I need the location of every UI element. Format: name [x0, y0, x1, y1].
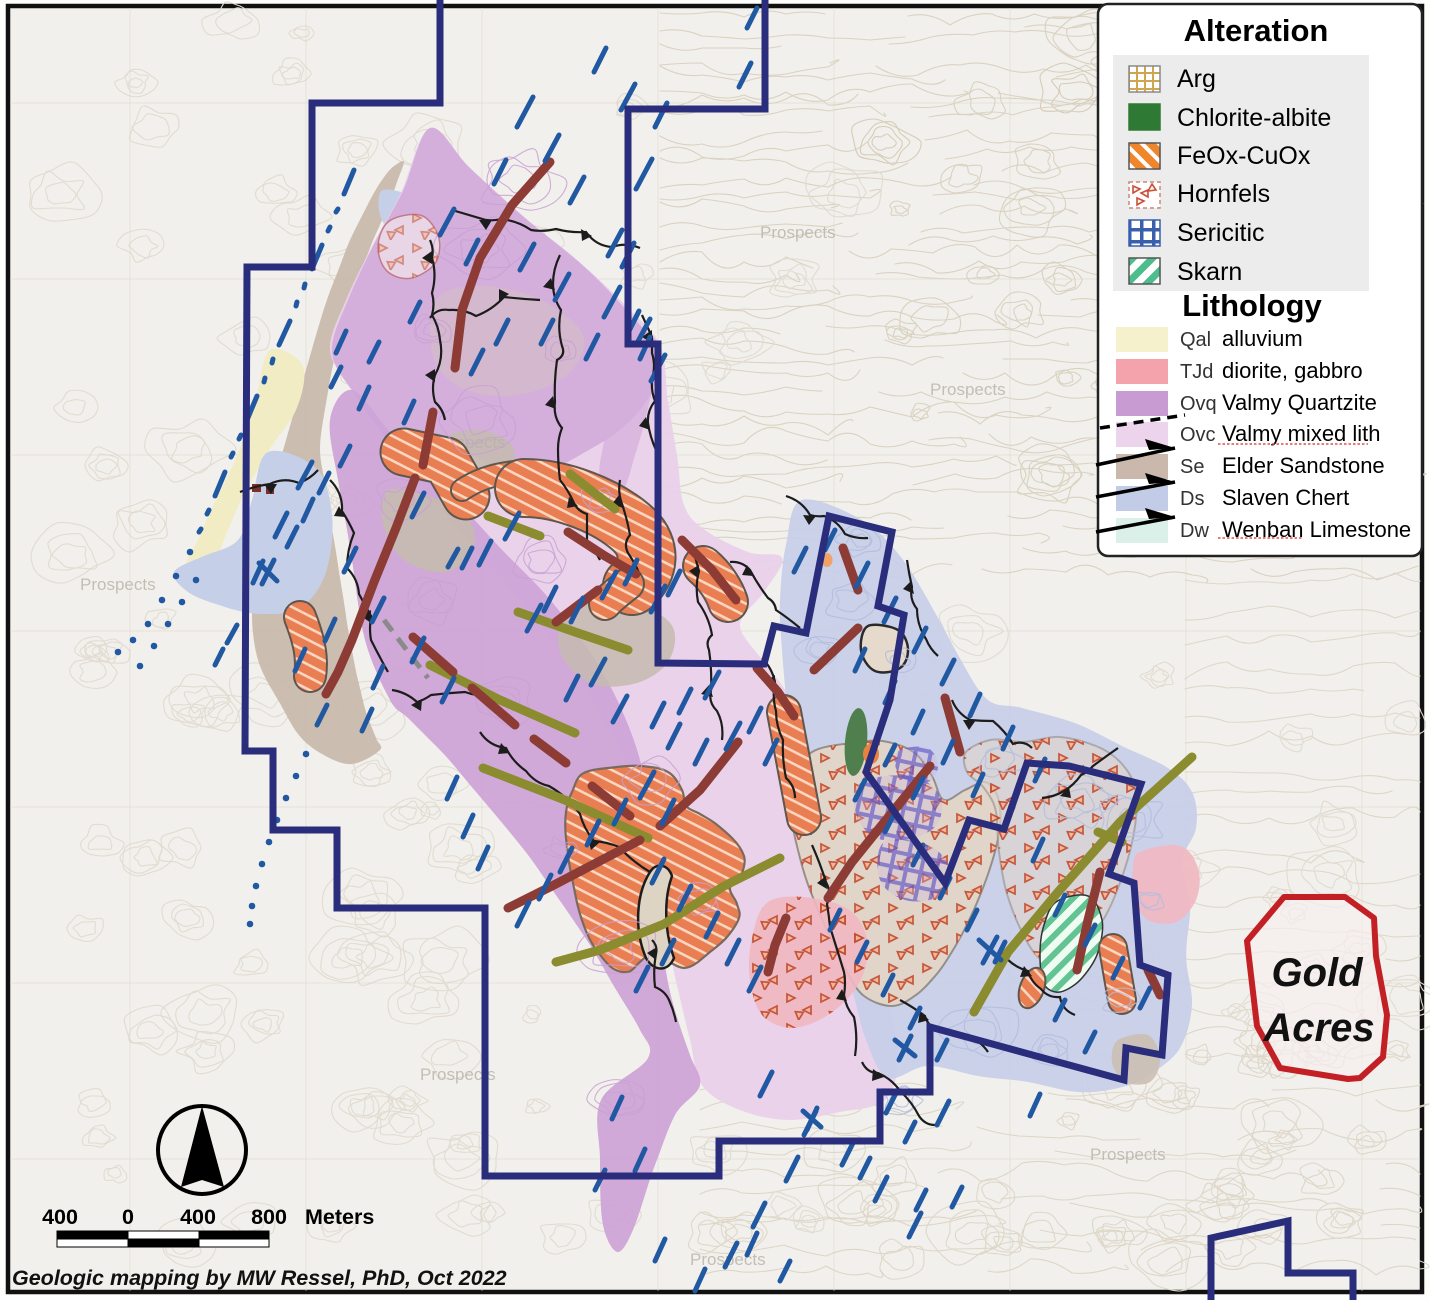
svg-text:Acres: Acres — [1262, 1006, 1374, 1050]
svg-text:400: 400 — [180, 1205, 216, 1229]
svg-text:Valmy mixed lith: Valmy mixed lith — [1222, 421, 1381, 446]
svg-text:Dw: Dw — [1180, 520, 1209, 542]
svg-text:0: 0 — [122, 1205, 134, 1229]
svg-text:Sericitic: Sericitic — [1177, 219, 1265, 247]
svg-text:Alteration: Alteration — [1184, 13, 1329, 48]
svg-text:Meters: Meters — [305, 1205, 374, 1229]
svg-text:Elder Sandstone: Elder Sandstone — [1222, 453, 1385, 478]
svg-text:Qal: Qal — [1180, 329, 1211, 351]
svg-text:Ds: Ds — [1180, 488, 1204, 510]
svg-text:alluvium: alluvium — [1222, 326, 1303, 351]
svg-text:Prospects: Prospects — [760, 223, 836, 242]
svg-text:Chlorite-albite: Chlorite-albite — [1177, 104, 1331, 132]
svg-text:Ovc: Ovc — [1180, 424, 1216, 446]
svg-text:Skarn: Skarn — [1177, 258, 1242, 286]
svg-text:Gold: Gold — [1271, 951, 1364, 995]
svg-text:TJd: TJd — [1180, 361, 1213, 383]
svg-text:Prospects: Prospects — [80, 575, 156, 594]
svg-text:Hornfels: Hornfels — [1177, 180, 1270, 208]
svg-text:Se: Se — [1180, 456, 1204, 478]
svg-text:FeOx-CuOx: FeOx-CuOx — [1177, 142, 1311, 170]
svg-text:400: 400 — [42, 1205, 78, 1229]
svg-text:Arg: Arg — [1177, 65, 1216, 93]
svg-text:Prospects: Prospects — [930, 380, 1006, 399]
svg-text:Ovq: Ovq — [1180, 393, 1217, 415]
svg-text:Prospects: Prospects — [1090, 1145, 1166, 1164]
svg-text:Slaven Chert: Slaven Chert — [1222, 485, 1349, 510]
svg-text:Valmy Quartzite: Valmy Quartzite — [1222, 390, 1377, 415]
svg-text:Geologic mapping by MW Ressel,: Geologic mapping by MW Ressel, PhD, Oct … — [12, 1266, 507, 1290]
svg-text:diorite, gabbro: diorite, gabbro — [1222, 358, 1363, 383]
svg-text:800: 800 — [251, 1205, 287, 1229]
svg-text:Lithology: Lithology — [1182, 288, 1322, 323]
